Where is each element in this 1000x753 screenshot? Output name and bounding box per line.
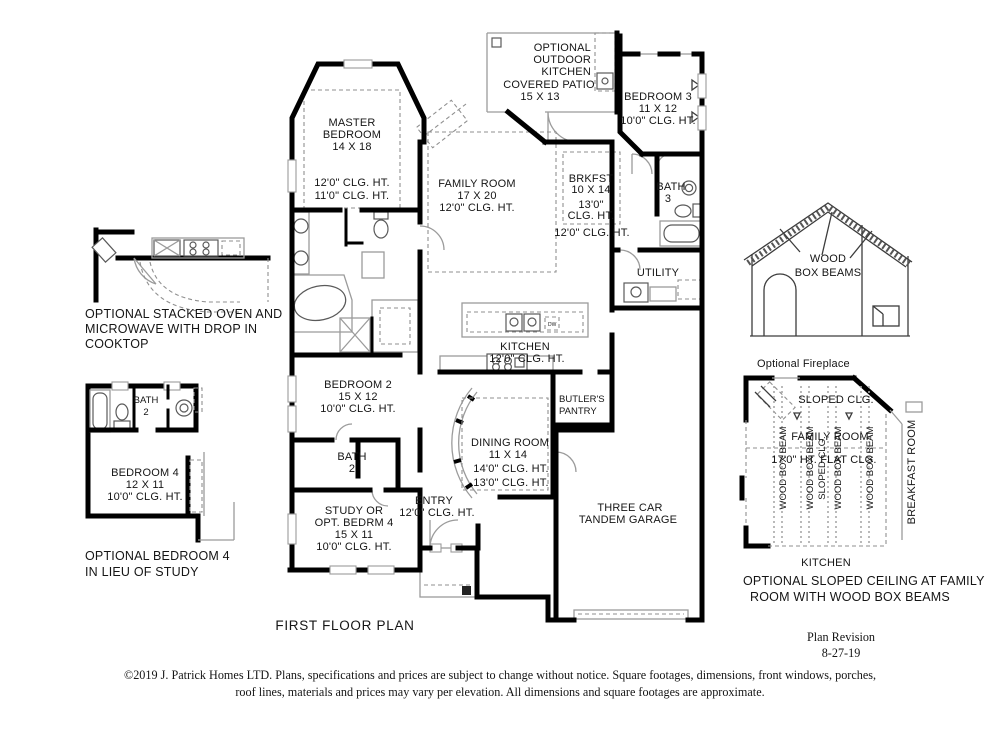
brkfst-dims: 10 X 14 [571,184,610,196]
study-label: OPT. BEDRM 4 [315,517,394,529]
family-room-dims: 17 X 20 [457,190,496,202]
entry-label: ENTRY [415,495,454,507]
oven-detail-caption: OPTIONAL STACKED OVEN AND MICROWAVE WITH… [85,307,282,351]
wood-box-beam-label: WOOD BOX BEAM [778,426,789,509]
optional-outdoor-kitchen-label: OUTDOOR [533,54,591,66]
brkfst-clg: CLG. HT. [568,210,615,222]
floor-plan-canvas: OPTIONAL OUTDOOR KITCHEN COVERED PATIO 1… [0,0,1000,753]
bedroom4-caption-line: OPTIONAL BEDROOM 4 [85,549,230,563]
bedroom2-dims: 15 X 12 [338,391,377,403]
sloped-caption-line: OPTIONAL SLOPED CEILING AT FAMILY [743,574,985,588]
bath3-label: 3 [665,193,671,205]
breakfast-room-label: BREAKFAST ROOM [906,420,918,525]
oven-caption-line: MICROWAVE WITH DROP IN [85,322,257,336]
wood-box-beams-label: BOX BEAMS [795,267,862,279]
oven-detail-plan [92,230,268,312]
master-clg-label: 11'0" CLG. HT. [315,190,390,202]
master-bedroom-label: BEDROOM [323,129,381,141]
brkfst-outer-clg: 12'0" CLG. HT. [554,227,629,239]
bedroom3-clg: 10'0" CLG. HT. [620,115,695,127]
dining-room-clg: 14'0" CLG. HT. [473,463,548,475]
bath2-detail-label: BATH [134,395,159,406]
covered-patio-dims: 15 X 13 [520,91,559,103]
study-dims: 15 X 11 [335,529,374,541]
wood-box-beams-label: WOOD [810,253,846,265]
garage-label: TANDEM GARAGE [579,514,677,526]
bedroom4-label: BEDROOM 4 [111,467,179,479]
master-clg-label: 12'0" CLG. HT. [314,177,389,189]
entry-clg: 12'0" CLG. HT. [399,507,474,519]
wood-box-beam-label: WOOD BOX BEAM [865,426,876,509]
garage-label: THREE CAR [597,502,662,514]
bedroom2-clg: 10'0" CLG. HT. [320,403,395,415]
porch-outline [420,544,477,597]
garage-door [574,610,688,619]
wood-box-beam-label: WOOD BOX BEAM [833,426,844,509]
wood-box-beams-elevation: WOOD BOX BEAMS [744,203,912,336]
dining-room-label: DINING ROOM [471,437,549,449]
bath2-detail-label: 2 [143,407,148,418]
dining-room-dims: 11 X 14 [489,449,528,461]
utility-label: UTILITY [637,267,680,279]
optional-fireplace-label: Optional Fireplace [757,358,850,370]
plan-revision-label: Plan Revision [807,630,875,644]
plan-revision-date: 8-27-19 [822,646,861,660]
sloped-ceiling-detail-labels: Optional Fireplace SLOPED CLG. FAMILY RO… [743,358,985,604]
master-bath-fixtures [291,210,418,352]
bedroom4-clg: 10'0" CLG. HT. [107,491,182,503]
copyright-line: ©2019 J. Patrick Homes LTD. Plans, speci… [124,668,876,682]
dining-room-clg: 13'0" CLG. HT. [473,477,548,489]
dw-label: DW [548,322,557,328]
kitchen-clg: 12'0" CLG. HT. [489,353,564,365]
bedroom4-dims: 12 X 11 [126,479,165,491]
utility-fixtures [624,280,702,302]
kitchen-island [462,303,588,337]
first-floor-plan-title: FIRST FLOOR PLAN [275,618,414,633]
optional-outdoor-kitchen-label: OPTIONAL [534,42,591,54]
wood-box-beam-label: WOOD BOX BEAM [805,426,816,509]
oven-caption-line: OPTIONAL STACKED OVEN AND [85,307,282,321]
bath2-label: BATH [337,451,366,463]
bedroom3-label: BEDROOM 3 [624,91,692,103]
butlers-pantry-label: PANTRY [559,406,597,417]
sloped-clg-label: SLOPED CLG. [798,394,874,406]
kitchen-detail-label: KITCHEN [801,557,851,569]
bedroom4-detail-plan [88,382,234,540]
floor-plan-page: OPTIONAL OUTDOOR KITCHEN COVERED PATIO 1… [0,0,1000,753]
butlers-pantry-label: BUTLER'S [559,394,605,405]
master-bedroom-label: MASTER [328,117,375,129]
bedroom2-label: BEDROOM 2 [324,379,392,391]
sloped-caption-line: ROOM WITH WOOD BOX BEAMS [750,590,950,604]
kitchen-label: KITCHEN [500,341,550,353]
family-room-clg: 12'0" CLG. HT. [439,202,514,214]
optional-outdoor-kitchen-label: KITCHEN [541,66,591,78]
study-label: STUDY OR [325,505,383,517]
study-clg: 10'0" CLG. HT. [316,541,391,553]
bath2-label: 2 [349,463,355,475]
footer-text: FIRST FLOOR PLAN Plan Revision 8-27-19 ©… [124,618,876,699]
bedroom3-dims: 11 X 12 [639,103,678,115]
covered-patio-label: COVERED PATIO [503,79,595,91]
family-room-label: FAMILY ROOM [438,178,516,190]
family-room-detail-label: FAMILY ROOM [791,431,869,443]
copyright-line: roof lines, materials and prices may var… [235,685,764,699]
bedroom4-caption-line: IN LIEU OF STUDY [85,565,199,579]
master-bedroom-dims: 14 X 18 [332,141,371,153]
oven-caption-line: COOKTOP [85,337,149,351]
sloped-clg-vertical-label: SLOPED CLG. [817,436,828,499]
bath3-label: BATH [656,181,685,193]
